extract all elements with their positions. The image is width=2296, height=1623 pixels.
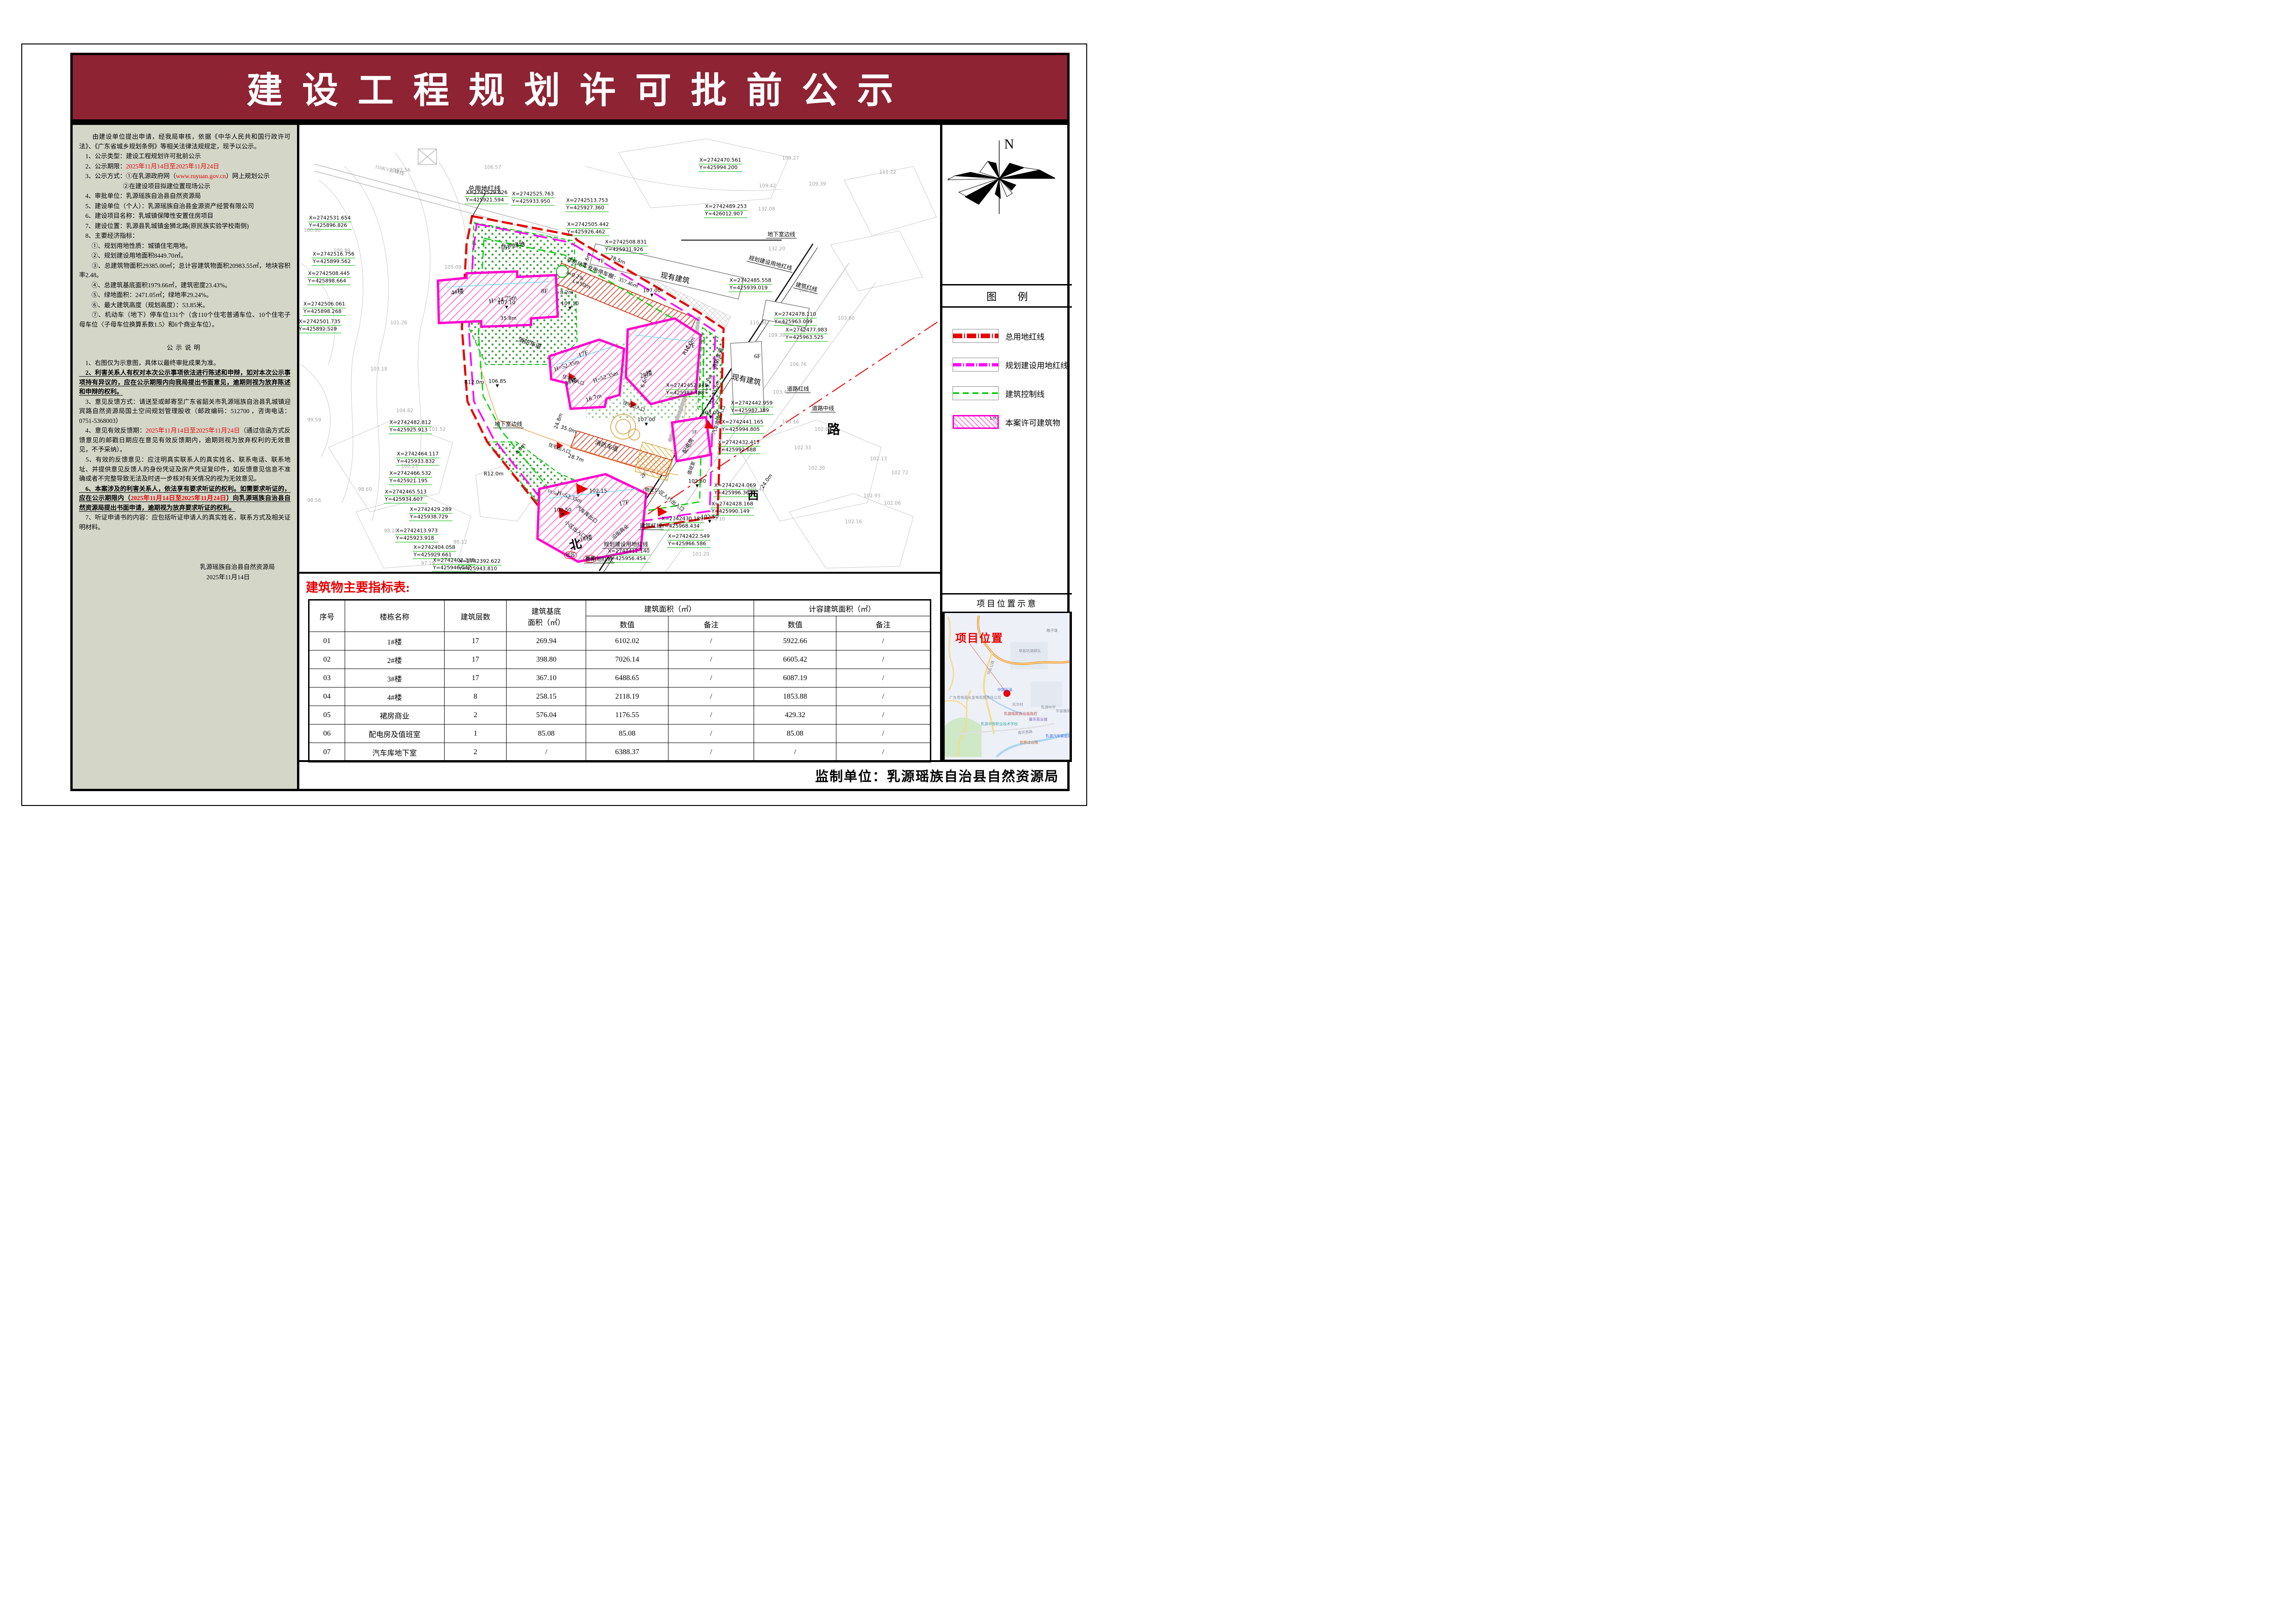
coordinate-callout: X=2742412.140Y=425956.454 (607, 548, 650, 563)
table-row: 011#楼17269.946102.02/5922.66/ (309, 632, 930, 650)
table-row: 07汽车库地下室2/6388.37/// (309, 743, 930, 762)
notice-paragraph: 6、建设项目名称：乳城镇保障性安置住房项目 (79, 211, 291, 221)
park-area (945, 718, 982, 757)
dimension-label: 35.8m (500, 316, 516, 322)
elevation-value: 111.22 (879, 169, 897, 175)
coordinate-callout: X=2742432.417Y=425992.688 (717, 439, 761, 454)
notice-paragraph: 2、公示期限：2025年11月14日至2025年11月24日 (79, 162, 291, 172)
elevation-value: 102.93 (864, 493, 881, 499)
dimension-label: R12.0m (484, 471, 504, 477)
main-row: 总用地红线防护绿地110KV前锋线消防车道消防车道消防车道非机动车充电停车棚：3… (299, 125, 1067, 762)
legend-label: 规划建设用地红线 (1005, 359, 1068, 371)
coordinate-callout: X=2742489.253Y=426012.907 (704, 203, 748, 218)
coordinate-callout: X=2742428.168Y=425990.149 (711, 501, 754, 515)
compass-box: N (942, 125, 1072, 285)
elevation-value: 109.39 (809, 181, 826, 187)
spot-elevation-marker: 107.00▼ (637, 416, 656, 426)
elevation-value: 132.08 (758, 206, 775, 212)
elevation-value: 106.76 (790, 362, 807, 367)
notice-paragraph: ⑥、最大建筑高度（规划高度）：53.85米。 (79, 301, 291, 310)
map-label: 7F (598, 258, 604, 264)
center-col: 总用地红线防护绿地110KV前锋线消防车道消防车道消防车道非机动车充电停车棚：3… (299, 125, 940, 762)
spot-elevation-marker: 100.50▼ (554, 507, 572, 516)
elevation-value: 105.09 (445, 265, 462, 270)
map-label: 道路中线 (811, 405, 835, 412)
coordinate-callout: X=2742478.110Y=425963.099 (774, 311, 817, 326)
legend-item: 17F本案许可建筑物 (953, 415, 1072, 429)
coordinate-callout: X=2742429.289Y=425938.729 (409, 506, 452, 521)
elevation-value: 98.60 (358, 487, 372, 492)
sw-hatch-swatch: 17F (953, 415, 999, 429)
table-row: 05裙房商业2576.041176.55/429.32/ (309, 706, 930, 725)
elevation-value: 102.60 (815, 427, 832, 432)
coordinate-callout: X=2742413.973Y=425923.918 (395, 527, 439, 542)
coordinate-callout: X=2742442.959Y=425987.389 (730, 400, 774, 415)
map-label: 社区 (564, 551, 577, 559)
elevation-value: 102.56 (394, 167, 411, 173)
map-label: 地下室边线 (493, 421, 524, 428)
elevation-value: 100.04 (320, 327, 337, 332)
elevation-value: 103.18 (371, 366, 388, 372)
notice-paragraph: 8、主要经济指标： (79, 231, 291, 241)
coordinate-callout: X=2742466.532Y=425921.195 (389, 470, 432, 485)
coordinate-callout: X=2742485.558Y=425939.019 (729, 277, 772, 292)
spot-elevation-marker: 106.85▼ (489, 378, 507, 388)
spot-elevation-marker: 102.50▼ (688, 478, 706, 488)
minimap-poi-label: 世界过山瑶 (1020, 740, 1038, 745)
minimap-poi-label: 乳源中等职业技术学校 (981, 722, 1018, 727)
notice-paragraph: 5、有效的反馈意见：应注明真实联系人的真实姓名、联系电话、联系地址、并提供意见反… (79, 455, 291, 484)
wind-rose-compass: N (942, 125, 1072, 283)
page-title: 建设工程规划许可批前公示 (227, 62, 913, 113)
table-row: 06配电房及值班室185.0885.08/85.08/ (309, 725, 930, 743)
site-plan-map: 总用地红线防护绿地110KV前锋线消防车道消防车道消防车道非机动车充电停车棚：3… (299, 125, 940, 574)
notice-text-panel: 由建设单位提出申请，经我局审核，依据《中华人民共和国行政许可法》、《广东省城乡规… (73, 125, 299, 789)
minimap-poi-label: 雕子塘 (1046, 628, 1058, 633)
elevation-value: 109.38 (768, 333, 786, 338)
sw-red-dash-swatch (953, 329, 999, 343)
elevation-value: 102.06 (884, 501, 901, 506)
supervisor-label: 监制单位：乳源瑶族自治县自然资源局 (815, 766, 1059, 785)
dimension-label: 8.2m (560, 290, 573, 296)
elevation-value: 101.26 (390, 320, 408, 326)
elevation-value: 132.20 (768, 246, 786, 252)
notice-paragraph: 6、本案涉及的利害关系人，依法享有要求听证的权利。如需要求听证的，应在公示期限内… (79, 484, 291, 513)
notice-paragraph: 7、建设位置：乳源县乳城镇金狮北路(原民族实验学校南侧) (79, 222, 291, 231)
notice-paragraph: 3、意见反馈方式：请送至或邮寄至广东省韶关市乳源瑶族自治县乳城镇迎宾路自然资源局… (79, 397, 291, 426)
notice-poster: { "banner": {"title": "建设工程规划许可批前公示"}, "… (0, 0, 1148, 811)
rose-petals (948, 161, 1055, 204)
map-label: 1F (692, 429, 697, 435)
spot-elevation-marker: 103.00▼ (702, 409, 720, 419)
indicator-table-body: 011#楼17269.946102.02/5922.66/022#楼17398.… (309, 632, 930, 762)
notice-paragraph: 4、意见有效反馈期：2025年11月14日至2025年11月24日（通过信函方式… (79, 426, 291, 455)
map-label: 6F (754, 353, 761, 359)
legend-item: 建筑控制线 (953, 386, 1072, 400)
north-label: N (1004, 137, 1014, 152)
minimap-poi-label: 单板坑调耕队 (1019, 649, 1041, 654)
location-minimap: 项目位置雕子塘单板坑调耕队坪乳公路中国石油风华村广东粤电南水发电有限责任公司乳源… (942, 613, 1072, 762)
elevation-value: 101.52 (429, 427, 446, 432)
spot-elevation-marker: 102.50▼ (701, 514, 719, 523)
left-paragraphs: 由建设单位提出申请，经我局审核，依据《中华人民共和国行政许可法》、《广东省城乡规… (79, 132, 291, 582)
elevation-value: 100.89 (334, 248, 351, 254)
elevation-value: 97.19 (421, 561, 435, 566)
map-label: 建筑红线 (638, 523, 663, 530)
coordinate-callout: X=2742525.763Y=425933.950 (511, 191, 555, 205)
minimap-poi-label: 风华村 (1012, 702, 1023, 707)
notice-paragraph: 1、公示类型：建设工程规划许可批前公示 (79, 152, 291, 161)
col-area-note: 备注 (668, 616, 754, 632)
map-label: 养老 (583, 555, 596, 563)
coordinate-callout: X=2742477.983Y=425963.525 (785, 327, 828, 341)
coordinate-callout: X=2742513.753Y=425927.360 (565, 197, 609, 212)
minimap-poi-label: 乳源汽车客运站 (1046, 734, 1071, 739)
notice-paragraph: 2025年11月14日 (79, 573, 291, 582)
col-far-note: 备注 (836, 616, 930, 632)
coordinate-callout: X=2742404.058Y=425929.661 (413, 544, 456, 559)
coordinate-callout: X=2742508.445Y=425898.664 (307, 270, 351, 285)
map-label: 地下室边线 (766, 231, 797, 238)
elevation-value: 103.60 (838, 316, 855, 321)
location-title: 项目位置示意 (942, 595, 1072, 613)
sw-green-dash-swatch (953, 386, 999, 400)
table-row: 033#楼17367.106488.65/6087.19/ (309, 669, 930, 688)
legend-list: 总用地红线规划建设用地红线建筑控制线17F本案许可建筑物 (942, 308, 1072, 595)
notice-paragraph: ②、规划建设用地面积8449.70㎡。 (79, 251, 291, 261)
coordinate-callout: X=2742506.061Y=425898.268 (303, 301, 346, 316)
supervisor-strip: 监制单位：乳源瑶族自治县自然资源局 (299, 762, 1067, 789)
notice-paragraph: ⑤、绿地面积：2471.05㎡；绿地率29.24%。 (79, 291, 291, 300)
notice-paragraph: ②在建设项目拟建位置现场公示 (79, 182, 291, 192)
notice-paragraph: 由建设单位提出申请，经我局审核，依据《中华人民共和国行政许可法》、《广东省城乡规… (79, 132, 291, 151)
legend-item: 规划建设用地红线 (953, 358, 1072, 372)
spot-elevation-marker: 107.10▼ (561, 300, 579, 310)
map-label: 8F (541, 288, 548, 295)
col-far-group: 计容建筑面积（㎡） (754, 600, 931, 616)
col-area-value: 数值 (586, 616, 668, 632)
notice-paragraph: ④、总建筑基底面积1979.66㎡，建筑密度23.43%。 (79, 281, 291, 291)
title-banner: 建设工程规划许可批前公示 (73, 55, 1067, 125)
col-name: 楼栋名称 (345, 600, 444, 632)
elevation-value: 100.27 (401, 464, 418, 469)
minimap-poi-label: 广东粤电南水发电有限责任公司 (949, 695, 1001, 700)
legend-label: 建筑控制线 (1005, 388, 1045, 399)
minimap-poi-label: 乳源中学 (1041, 705, 1056, 710)
content: 由建设单位提出申请，经我局审核，依据《中华人民共和国行政许可法》、《广东省城乡规… (73, 125, 1067, 789)
col-floors: 建筑层数 (444, 600, 506, 632)
dimension-label: R12.0m (464, 379, 484, 385)
notice-paragraph: ⑦、机动车（地下）停车位131个（含110个住宅普通车位、10个住宅子母车位〈子… (79, 310, 291, 329)
legend-title: 图 例 (942, 285, 1072, 308)
coordinate-callout: X=2742452.345Y=425982.488 (665, 382, 709, 397)
coordinate-callout: X=2742465.513Y=425934.607 (384, 489, 427, 503)
indicator-table: 序号 楼栋名称 建筑层数 建筑基底 面积（㎡） 建筑面积（㎡） 计容建筑面积（㎡… (308, 599, 931, 762)
sw-magenta-dash-swatch (953, 358, 999, 372)
elevation-value: 110.04 (750, 320, 767, 326)
elevation-value: 102.33 (794, 445, 811, 451)
elevation-value: 102.16 (845, 519, 862, 525)
project-location-label: 项目位置 (955, 629, 1003, 645)
elevation-value: 101.20 (693, 551, 710, 557)
coordinate-callout: X=2742430.189Y=425968.434 (661, 515, 704, 530)
coordinate-callout: X=2742482.812Y=425925.913 (389, 419, 432, 434)
col-area-group: 建筑面积（㎡） (586, 600, 754, 616)
right-panel: N (940, 125, 1072, 762)
elevation-value: 106.57 (484, 165, 501, 170)
notice-paragraph: 乳源瑶族自治县自然资源局 (79, 563, 291, 572)
elevation-value: 100.86 (304, 228, 321, 233)
elevation-value: 102.72 (891, 470, 909, 476)
elevation-value: 98.29 (384, 528, 398, 534)
elevation-value: 98.12 (453, 539, 467, 545)
elevation-value: 104.82 (396, 408, 414, 414)
coordinate-callout: X=2742441.165Y=425994.805 (721, 419, 764, 434)
map-label: 物业 (643, 487, 656, 495)
table-zone: 建筑物主要指标表: 序号 楼栋名称 建筑层数 建筑基底 面积（㎡） (299, 574, 940, 762)
elevation-value: 103.40 (773, 390, 790, 395)
table-title: 建筑物主要指标表: (306, 577, 934, 595)
col-base: 建筑基底 面积（㎡） (507, 600, 586, 632)
spot-elevation-marker: 107.10▼ (498, 299, 516, 309)
col-seq: 序号 (309, 600, 345, 632)
notice-paragraph: 4、审批单位：乳源瑶族自治县自然资源局 (79, 192, 291, 201)
elevation-value: 109.27 (782, 155, 799, 161)
coordinate-callout: X=2742508.831Y=425931.926 (604, 239, 648, 254)
minimap-poi-label: 华景雅苑 (1056, 709, 1071, 714)
elevation-value: 98.56 (307, 498, 321, 503)
elevation-value: 102.13 (870, 456, 887, 462)
coordinate-callout: X=2742505.442Y=425926.462 (566, 221, 610, 236)
notice-paragraph: 2、利害关系人有权对本次公示事项依法进行陈述和申辩，如对本次公示事项持有异议的，… (79, 368, 291, 397)
legend-item: 总用地红线 (953, 329, 1072, 343)
notice-paragraph: ③、总建筑物面积29385.00㎡；总计容建筑物面积20983.55㎡，地块容积… (79, 261, 291, 280)
coordinate-callout: X=2742529.626Y=425921.594 (465, 189, 508, 204)
spot-elevation-marker: 107.00▼ (643, 287, 661, 297)
notice-paragraph: 3、公示方式：①在乳源政府网（www.ruyuan.gov.cn）网上规划公示 (79, 172, 291, 181)
legend-label: 本案许可建筑物 (1005, 416, 1060, 428)
spot-elevation-marker: 102.15▼ (589, 488, 607, 497)
notice-paragraph: 5、建设单位（个人）：乳源瑶族自治县金源资产经营有限公司 (79, 202, 291, 211)
mid-wrap: 总用地红线防护绿地110KV前锋线消防车道消防车道消防车道非机动车充电停车棚：3… (299, 125, 1067, 789)
sheet: 建设工程规划许可批前公示 由建设单位提出申请，经我局审核，依据《中华人民共和国行… (70, 53, 1070, 791)
elevation-value: 109.42 (759, 183, 776, 189)
coordinate-callout: X=2742422.549Y=425966.586 (667, 533, 711, 548)
table-row: 044#楼8258.152118.19/1853.88/ (309, 688, 930, 706)
legend-label: 总用地红线 (1005, 330, 1045, 342)
elevation-value: 99.59 (307, 417, 321, 423)
table-row: 022#楼17398.807026.14/6605.42/ (309, 650, 930, 669)
minimap-poi-label: 乳源瑶族自治县政府 (1004, 712, 1037, 717)
elevation-value: 103.16 (782, 419, 799, 425)
col-far-value: 数值 (754, 616, 836, 632)
coordinate-callout: X=2742392.622Y=425943.810 (458, 558, 501, 573)
notice-paragraph: 1、右图仅为示意图，具体以最终审批成果为准。 (79, 359, 291, 368)
elevation-value: 102.39 (808, 465, 825, 471)
elevation-value: 105.21 (799, 288, 816, 293)
minimap-poi-label: 嘉乐商业城 (1029, 717, 1047, 722)
notice-paragraph: 公示说明 (79, 343, 291, 353)
minimap-poi-label: 中国石油 (997, 688, 1012, 693)
notice-paragraph: ①、规划用地性质：城镇住宅用地。 (79, 242, 291, 251)
notice-paragraph: 7、听证申请书的内容：应包括听证申请人的真实姓名，联系方式及相关证明材料。 (79, 513, 291, 532)
coordinate-callout: X=2742470.561Y=425994.200 (699, 157, 742, 172)
